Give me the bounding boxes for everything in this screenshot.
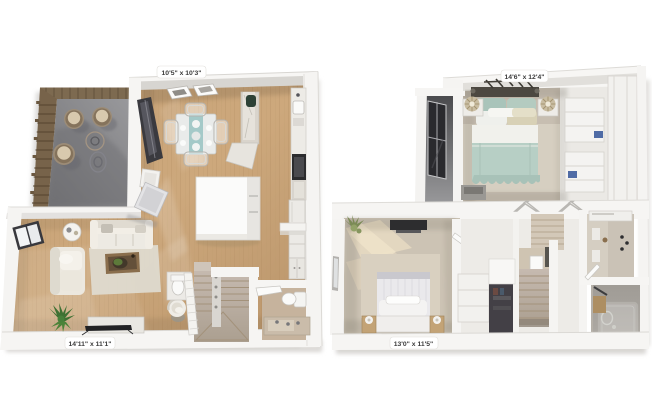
svg-text:14'6" x 12'4": 14'6" x 12'4" [505, 74, 545, 81]
svg-text:14'11" x 11'1": 14'11" x 11'1" [69, 341, 112, 348]
svg-text:10'5" x 10'3": 10'5" x 10'3" [162, 70, 202, 77]
svg-text:13'0" x 11'5": 13'0" x 11'5" [394, 341, 434, 348]
